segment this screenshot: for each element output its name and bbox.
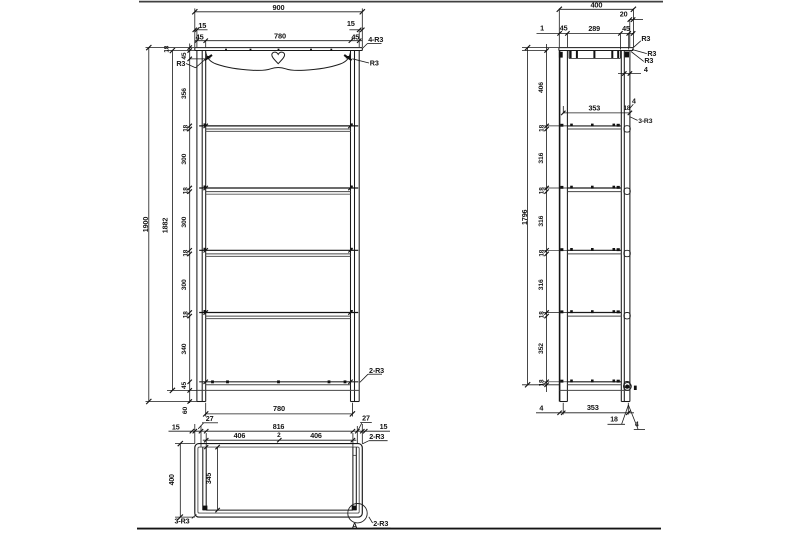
svg-text:356: 356 xyxy=(181,88,188,99)
svg-text:R3: R3 xyxy=(644,56,653,65)
svg-text:406: 406 xyxy=(310,431,322,440)
svg-text:780: 780 xyxy=(273,404,285,413)
svg-text:316: 316 xyxy=(538,152,545,163)
svg-text:20: 20 xyxy=(620,10,628,19)
svg-text:45: 45 xyxy=(181,382,188,390)
svg-text:353: 353 xyxy=(589,103,601,112)
svg-text:60: 60 xyxy=(182,407,189,415)
svg-text:345: 345 xyxy=(206,473,213,484)
svg-text:316: 316 xyxy=(538,279,545,290)
svg-text:400: 400 xyxy=(169,474,176,485)
svg-text:45: 45 xyxy=(196,32,204,41)
svg-text:400: 400 xyxy=(590,1,602,10)
svg-text:15: 15 xyxy=(198,21,206,30)
svg-text:4: 4 xyxy=(632,98,636,105)
svg-text:300: 300 xyxy=(181,279,188,290)
svg-text:18: 18 xyxy=(182,311,189,318)
svg-text:A: A xyxy=(352,521,358,530)
svg-text:18: 18 xyxy=(182,187,189,194)
svg-text:45: 45 xyxy=(351,32,359,41)
svg-text:4-R3: 4-R3 xyxy=(368,35,383,44)
svg-text:3-R3: 3-R3 xyxy=(638,118,653,125)
svg-text:18: 18 xyxy=(624,105,631,112)
svg-text:780: 780 xyxy=(274,31,286,40)
svg-text:2: 2 xyxy=(277,432,281,439)
svg-text:18: 18 xyxy=(182,249,189,256)
svg-text:4: 4 xyxy=(644,65,648,74)
svg-text:3-R3: 3-R3 xyxy=(175,516,190,525)
svg-text:340: 340 xyxy=(181,343,188,354)
svg-text:18: 18 xyxy=(182,124,189,131)
svg-text:816: 816 xyxy=(273,422,285,431)
svg-text:289: 289 xyxy=(588,24,600,33)
svg-text:4: 4 xyxy=(539,403,543,412)
svg-text:27: 27 xyxy=(362,413,370,422)
svg-text:2-R3: 2-R3 xyxy=(369,366,384,375)
svg-text:18: 18 xyxy=(538,124,545,131)
svg-text:R3: R3 xyxy=(641,34,650,43)
svg-text:18: 18 xyxy=(610,417,618,424)
svg-text:2-R3: 2-R3 xyxy=(373,519,388,528)
svg-text:353: 353 xyxy=(587,403,599,412)
svg-text:2-R3: 2-R3 xyxy=(369,432,384,441)
svg-text:316: 316 xyxy=(538,215,545,226)
svg-text:4: 4 xyxy=(635,422,639,429)
svg-text:18: 18 xyxy=(538,379,545,386)
svg-text:45: 45 xyxy=(560,24,568,33)
svg-text:18: 18 xyxy=(538,311,545,318)
svg-text:300: 300 xyxy=(181,216,188,227)
svg-text:R3: R3 xyxy=(370,59,379,68)
svg-text:1: 1 xyxy=(540,24,544,33)
svg-text:1882: 1882 xyxy=(161,218,170,234)
svg-text:900: 900 xyxy=(273,3,285,12)
svg-text:15: 15 xyxy=(380,422,388,431)
svg-text:1796: 1796 xyxy=(520,209,529,225)
svg-text:406: 406 xyxy=(538,82,545,93)
svg-text:18: 18 xyxy=(163,45,170,52)
svg-text:45: 45 xyxy=(622,24,630,33)
svg-text:27: 27 xyxy=(206,414,214,423)
svg-text:300: 300 xyxy=(181,153,188,164)
svg-text:15: 15 xyxy=(347,19,355,28)
svg-text:352: 352 xyxy=(538,343,545,354)
svg-text:45: 45 xyxy=(181,52,188,60)
svg-text:1900: 1900 xyxy=(141,217,150,233)
svg-text:406: 406 xyxy=(234,431,246,440)
svg-text:15: 15 xyxy=(172,423,180,432)
